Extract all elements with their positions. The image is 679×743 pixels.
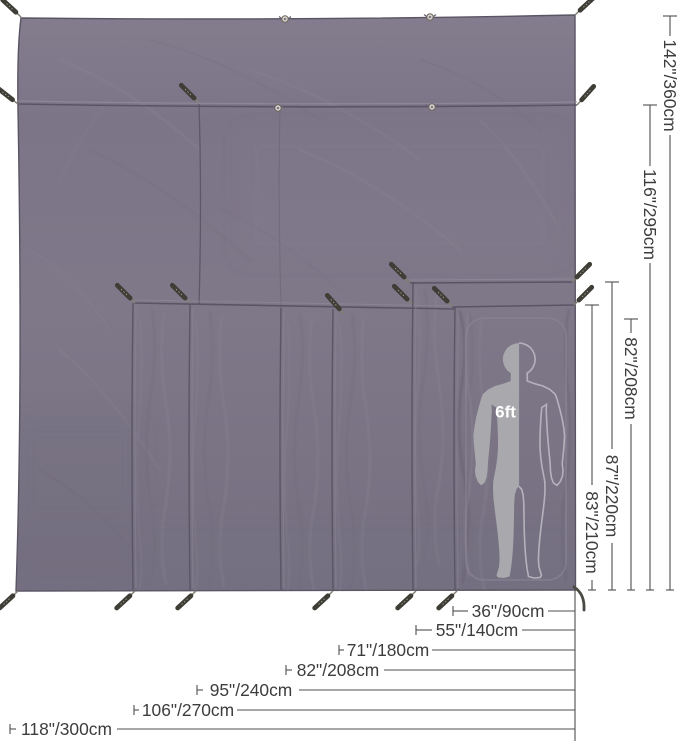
svg-text:82"/208cm: 82"/208cm [621,337,641,420]
svg-text:116"/295cm: 116"/295cm [640,169,660,260]
svg-text:82"/208cm: 82"/208cm [297,660,380,680]
svg-text:83"/210cm: 83"/210cm [582,491,602,574]
svg-text:95"/240cm: 95"/240cm [210,680,293,700]
svg-text:106"/270cm: 106"/270cm [142,700,234,720]
svg-text:118"/300cm: 118"/300cm [21,719,112,739]
svg-text:71"/180cm: 71"/180cm [347,640,430,660]
svg-text:36"/90cm: 36"/90cm [472,601,545,621]
svg-text:55"/140cm: 55"/140cm [436,620,519,640]
svg-text:6ft: 6ft [495,403,516,422]
svg-text:142"/360cm: 142"/360cm [660,39,679,131]
svg-text:87"/220cm: 87"/220cm [602,455,622,538]
